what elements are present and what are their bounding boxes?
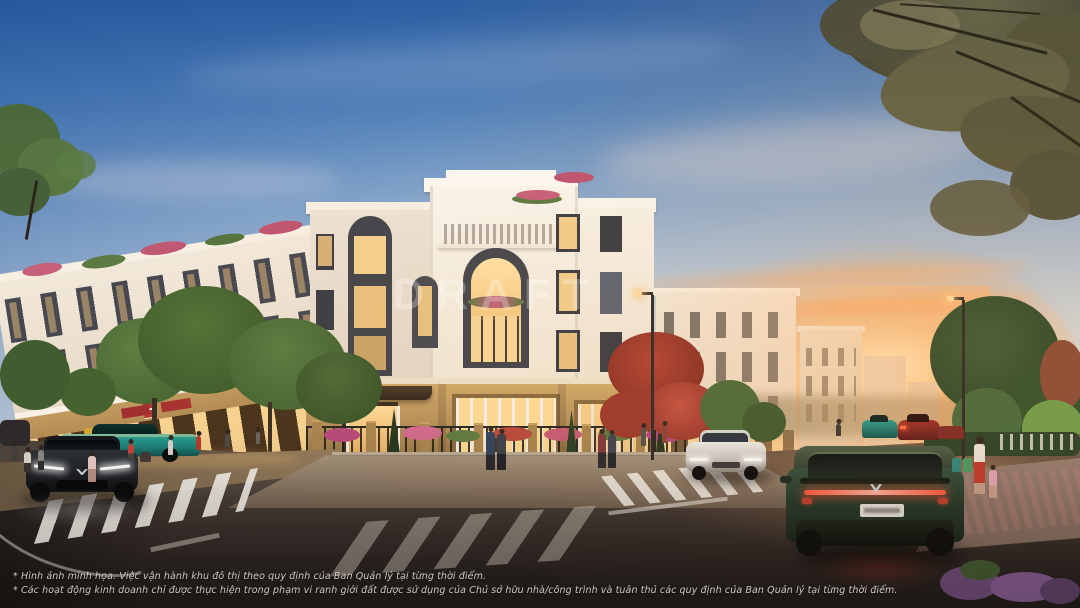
watermark-draft: DRAFT	[392, 270, 601, 320]
disclaimer-line-1: * Hình ảnh minh họa. Việc vận hành khu đ…	[13, 571, 486, 582]
rendering-canvas: DRAFT * Hình ảnh minh họa. Việc vận hành…	[0, 0, 1080, 608]
disclaimer-line-2: * Các hoạt động kinh doanh chỉ được thực…	[13, 585, 898, 596]
